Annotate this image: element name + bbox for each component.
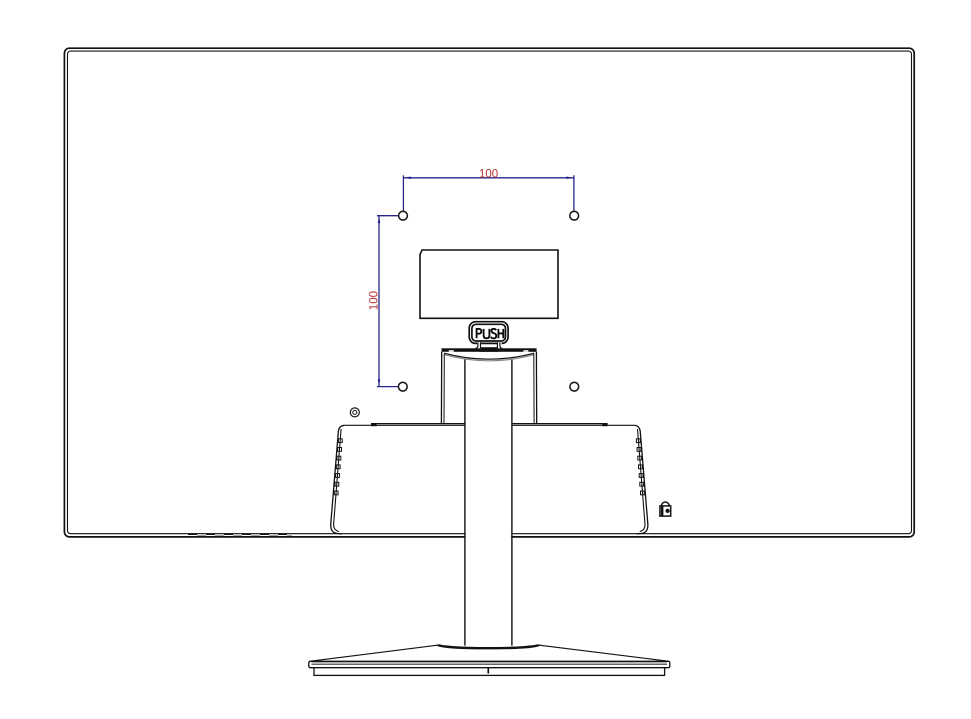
- svg-text:100: 100: [369, 291, 381, 310]
- svg-text:100: 100: [479, 168, 498, 180]
